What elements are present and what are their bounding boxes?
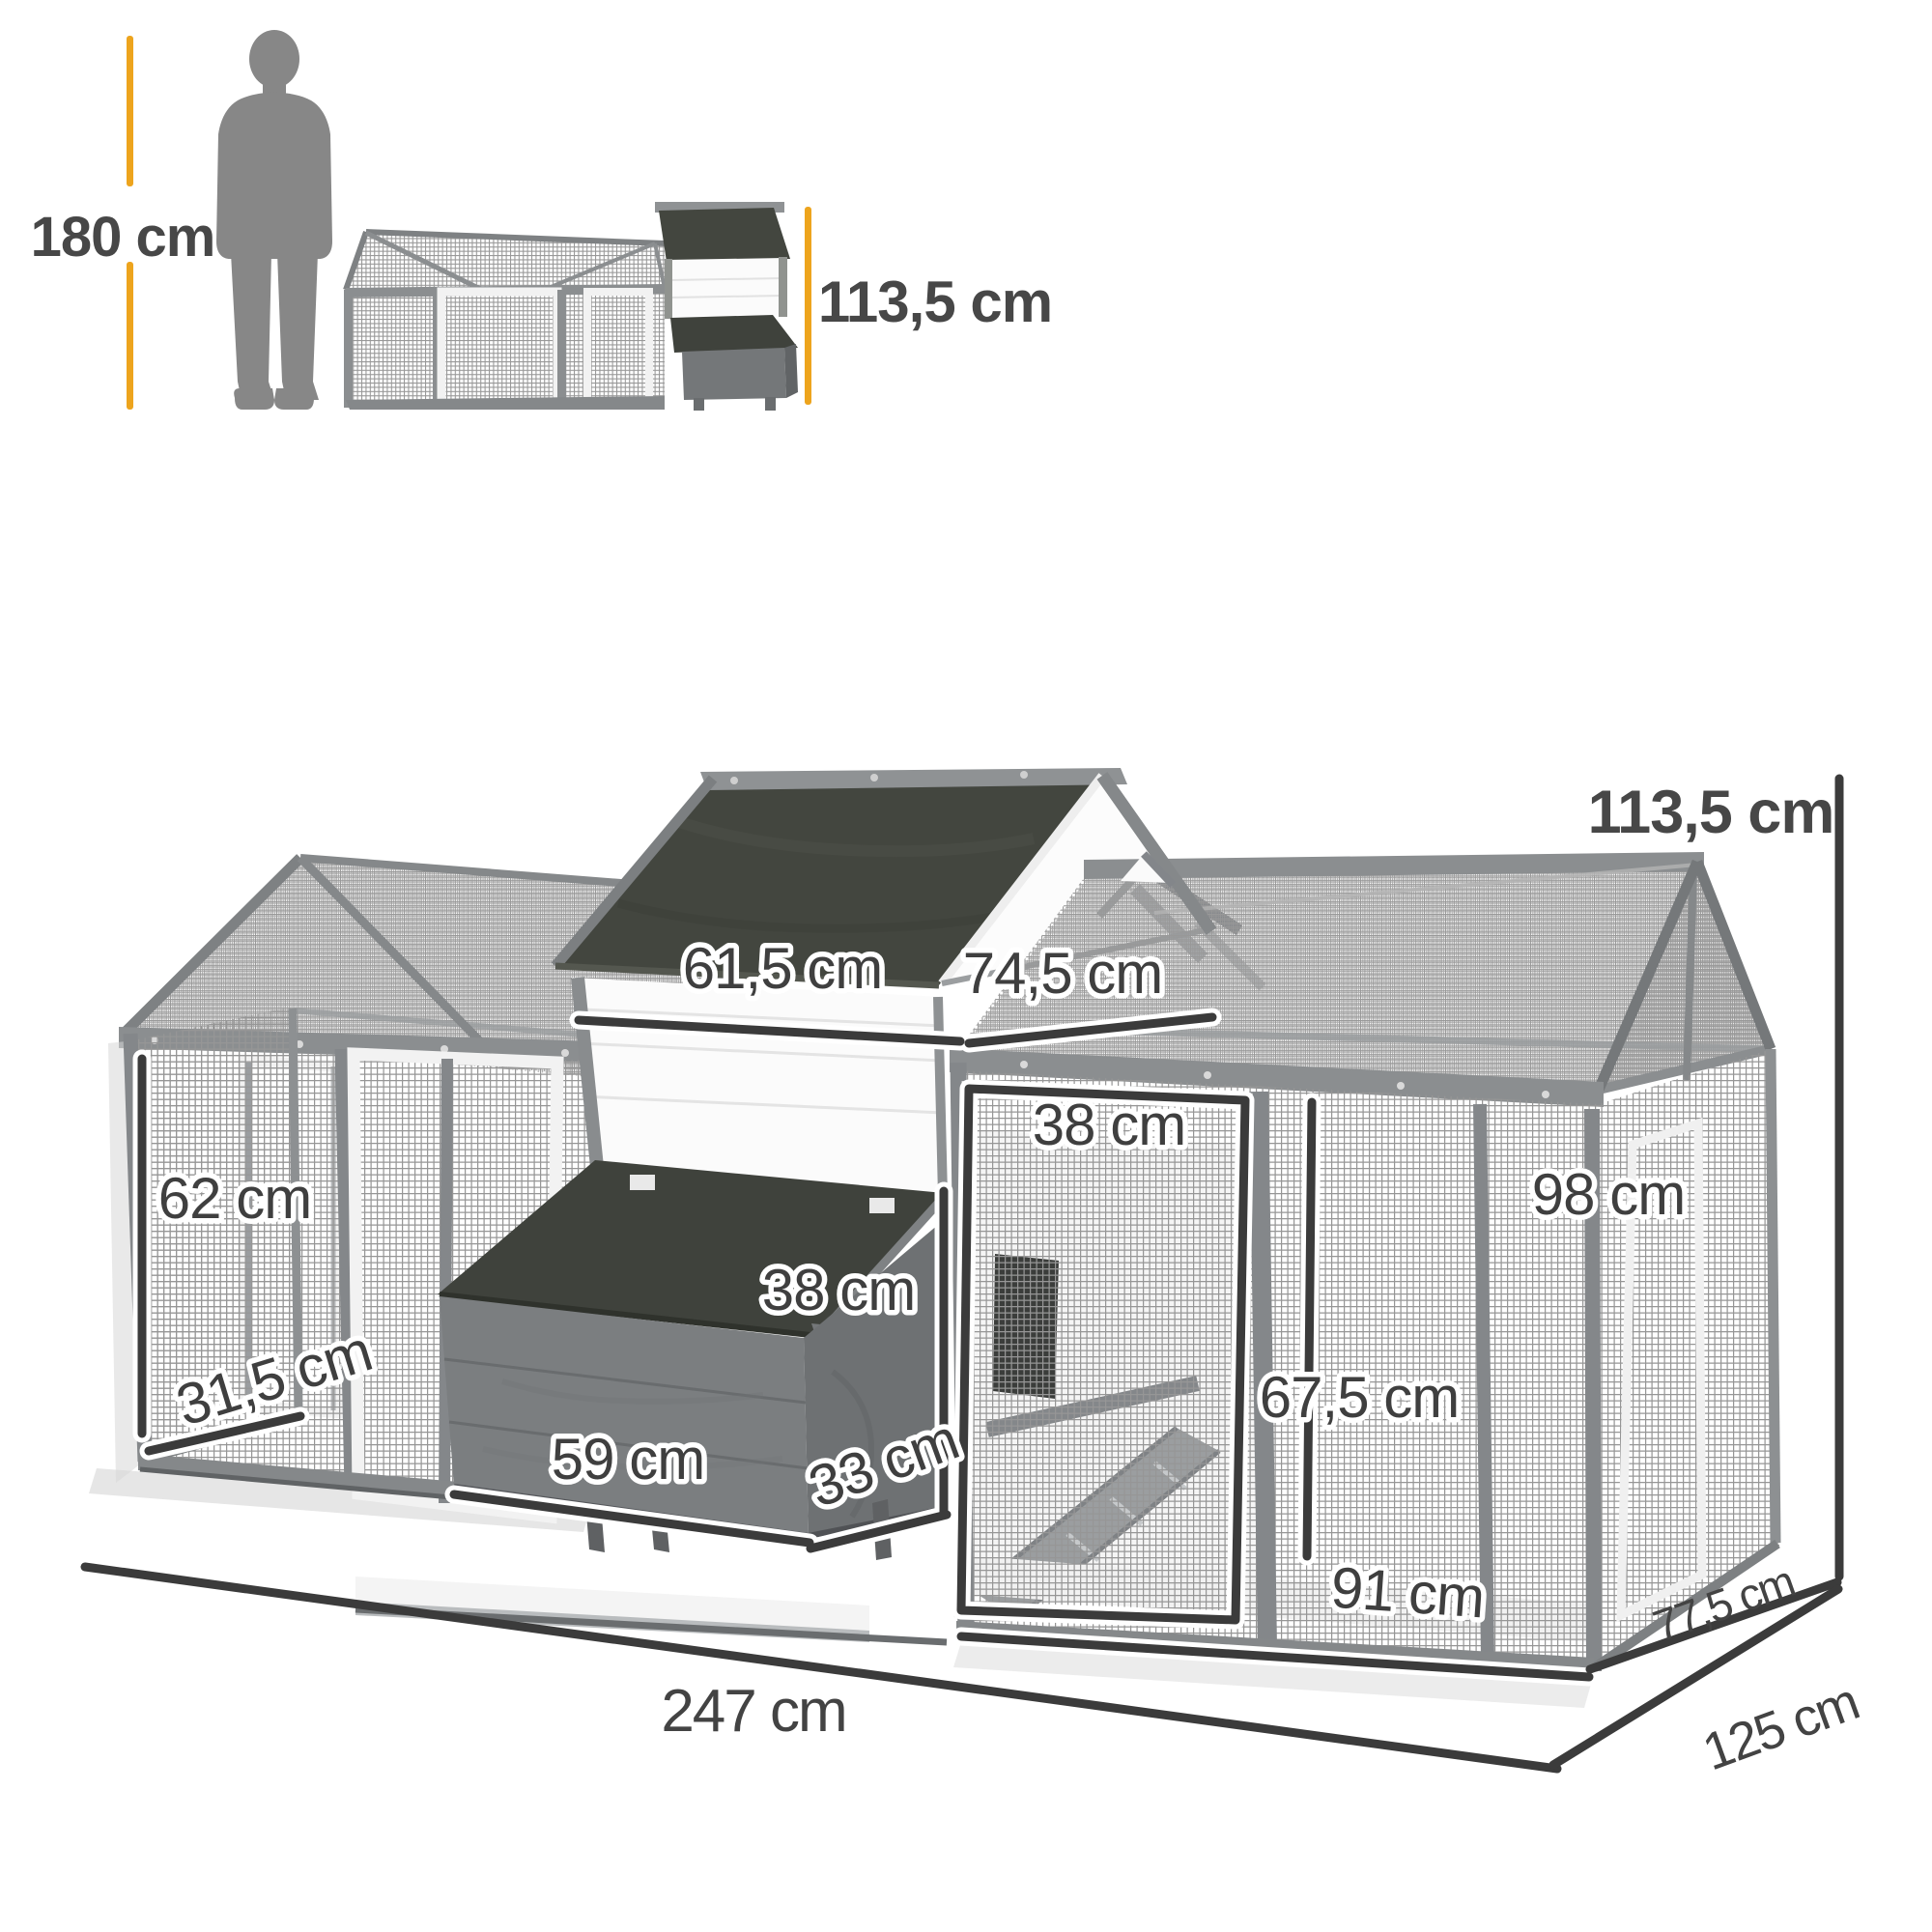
svg-text:59 cm: 59 cm (552, 1427, 704, 1492)
svg-text:62 cm: 62 cm (158, 1166, 311, 1231)
svg-text:91 cm: 91 cm (1329, 1555, 1487, 1631)
svg-text:180 cm: 180 cm (31, 206, 215, 269)
svg-text:247 cm: 247 cm (661, 1678, 845, 1745)
svg-text:61,5 cm: 61,5 cm (683, 936, 882, 1001)
svg-text:67,5 cm: 67,5 cm (1260, 1365, 1459, 1430)
svg-text:74,5 cm: 74,5 cm (963, 941, 1162, 1006)
svg-text:38 cm: 38 cm (762, 1258, 915, 1322)
svg-text:98 cm: 98 cm (1532, 1162, 1685, 1227)
svg-text:113,5 cm: 113,5 cm (1588, 779, 1834, 846)
svg-text:113,5 cm: 113,5 cm (818, 270, 1052, 334)
svg-text:38 cm: 38 cm (1033, 1093, 1185, 1157)
